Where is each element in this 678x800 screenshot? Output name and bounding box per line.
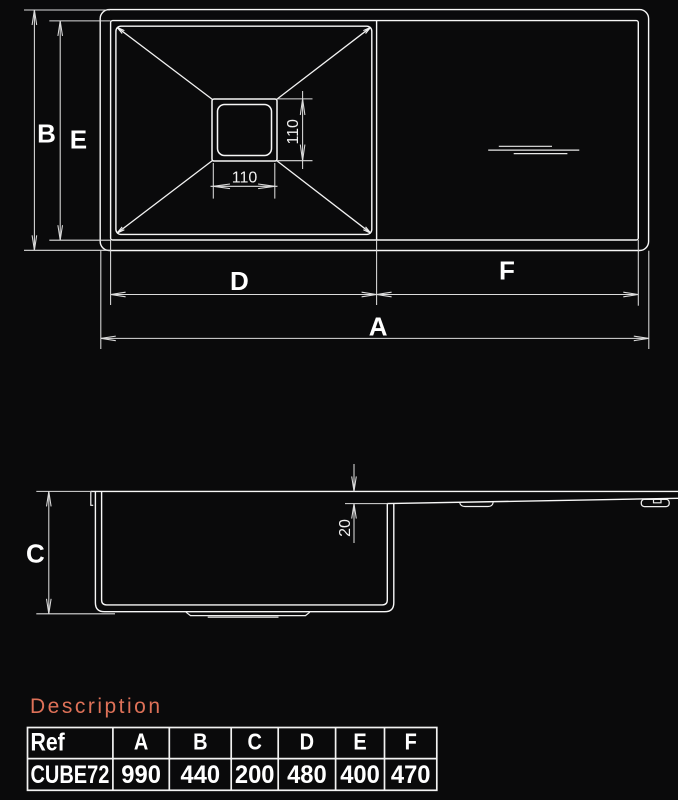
svg-text:990: 990 bbox=[121, 761, 161, 789]
svg-text:A: A bbox=[134, 728, 149, 755]
svg-text:Description: Description bbox=[30, 695, 163, 718]
svg-text:440: 440 bbox=[180, 761, 220, 789]
svg-text:E: E bbox=[353, 728, 366, 755]
svg-text:480: 480 bbox=[287, 761, 327, 789]
svg-text:20: 20 bbox=[337, 519, 354, 537]
svg-text:A: A bbox=[369, 311, 388, 341]
svg-text:470: 470 bbox=[391, 761, 431, 789]
svg-text:400: 400 bbox=[340, 761, 380, 789]
svg-text:CUBE72: CUBE72 bbox=[31, 761, 110, 789]
svg-text:Ref: Ref bbox=[31, 728, 65, 756]
svg-text:E: E bbox=[70, 125, 87, 155]
svg-text:C: C bbox=[247, 728, 262, 755]
svg-text:B: B bbox=[37, 119, 56, 149]
svg-text:D: D bbox=[300, 728, 314, 755]
svg-text:200: 200 bbox=[235, 761, 275, 789]
svg-text:F: F bbox=[499, 255, 515, 285]
svg-text:D: D bbox=[230, 266, 249, 296]
svg-text:C: C bbox=[26, 539, 45, 569]
svg-text:F: F bbox=[405, 728, 417, 755]
svg-text:B: B bbox=[193, 728, 207, 755]
svg-text:110: 110 bbox=[285, 119, 302, 145]
svg-text:110: 110 bbox=[232, 170, 258, 187]
